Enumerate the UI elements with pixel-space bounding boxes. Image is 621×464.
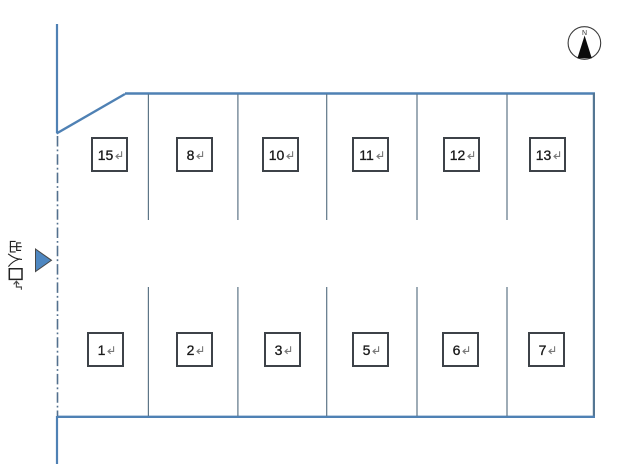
svg-text:N: N — [582, 30, 587, 37]
